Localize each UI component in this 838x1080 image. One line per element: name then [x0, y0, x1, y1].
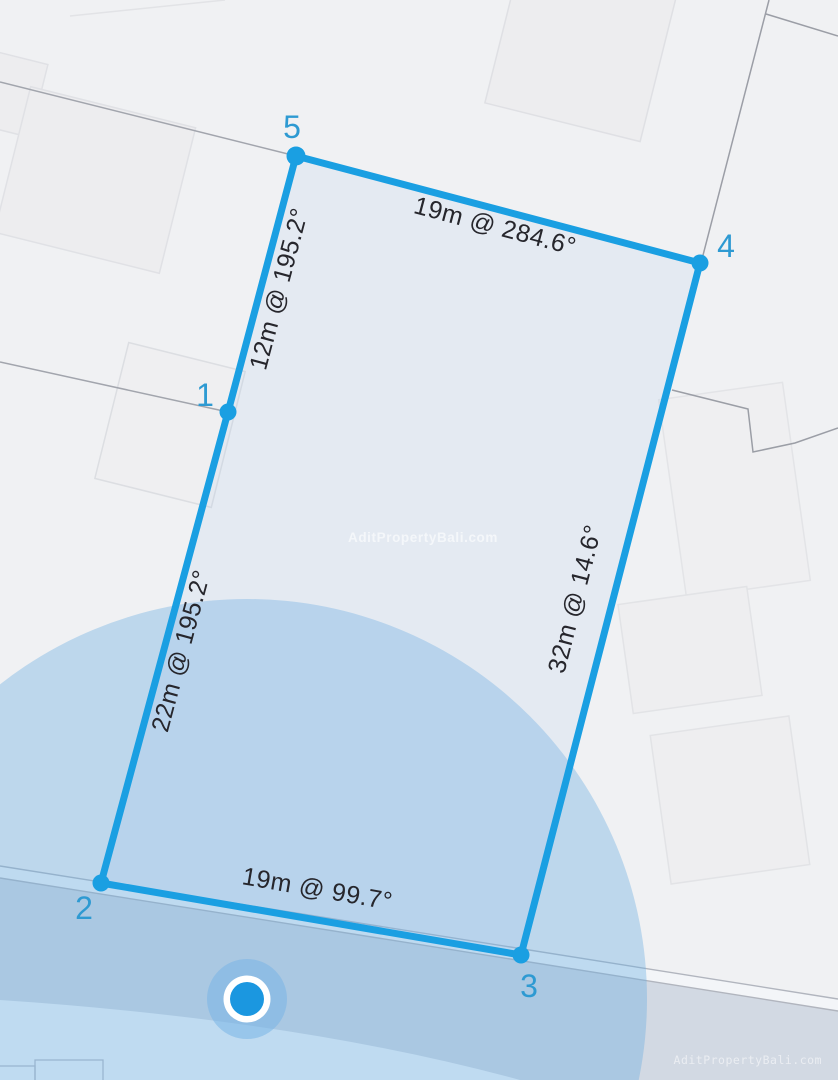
building-footprint: [618, 586, 762, 713]
vertex-dot-4[interactable]: [692, 255, 709, 272]
map-screen: 1 2 3 4 5 22m @ 195.2° 19m @ 99.7° 32m @…: [0, 0, 838, 1080]
vertex-label-3: 3: [520, 968, 538, 1004]
watermark-center: AditPropertyBali.com: [348, 530, 498, 545]
vertex-dot-1[interactable]: [220, 404, 237, 421]
vertex-dot-3[interactable]: [513, 947, 530, 964]
vertex-label-4: 4: [717, 228, 735, 264]
vertex-dot-2[interactable]: [93, 875, 110, 892]
location-marker: [207, 959, 287, 1039]
vertex-label-5: 5: [283, 109, 301, 145]
map-canvas[interactable]: 1 2 3 4 5 22m @ 195.2° 19m @ 99.7° 32m @…: [0, 0, 838, 1080]
location-dot: [230, 982, 264, 1016]
building-footprint: [650, 716, 810, 884]
watermark-corner: AditPropertyBali.com: [674, 1053, 822, 1067]
vertex-label-1: 1: [196, 377, 214, 413]
vertex-dot-5[interactable]: [287, 147, 306, 166]
vertex-label-2: 2: [75, 890, 93, 926]
building-footprint: [659, 382, 811, 597]
